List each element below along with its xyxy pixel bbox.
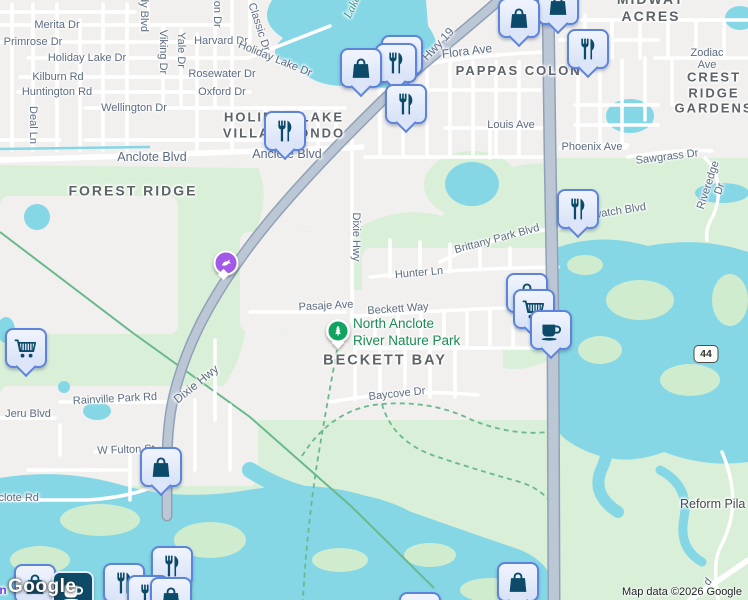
- poi-marker-restaurant[interactable]: [557, 189, 599, 229]
- poi-marker-restaurant[interactable]: [385, 84, 427, 124]
- shopping-bag-icon: [348, 55, 375, 82]
- map-base-tiles: [0, 0, 748, 600]
- shopping-bag-icon: [148, 454, 175, 481]
- attraction-pin[interactable]: [214, 251, 239, 276]
- restaurant-icon: [272, 118, 299, 145]
- poi-marker-shopping-bag[interactable]: [399, 592, 441, 600]
- shopping-cart-icon: [13, 335, 40, 362]
- shopping-bag-icon: [545, 0, 572, 19]
- map-attribution: Map data ©2026 Google: [622, 586, 742, 598]
- shopping-bag-icon: [505, 569, 532, 596]
- poi-marker-shopping-bag[interactable]: [150, 577, 192, 600]
- poi-marker-shopping-cart[interactable]: [5, 328, 47, 368]
- restaurant-icon: [383, 50, 410, 77]
- pine-tree-icon: [331, 324, 346, 339]
- restaurant-icon: [393, 91, 420, 118]
- poi-marker-shopping-bag[interactable]: [537, 0, 579, 25]
- poi-marker-shopping-bag[interactable]: [498, 0, 540, 38]
- poi-marker-coffee-cup[interactable]: [530, 310, 572, 350]
- shopping-bag-icon: [506, 5, 533, 32]
- coffee-cup-icon: [538, 317, 565, 344]
- poi-marker-restaurant[interactable]: [567, 29, 609, 69]
- shopping-bag-icon: [158, 584, 185, 600]
- dolphin-icon: [219, 256, 234, 271]
- poi-marker-restaurant[interactable]: [264, 111, 306, 151]
- map-canvas[interactable]: Google Map data ©2026 Google Merita DrPr…: [0, 0, 748, 600]
- restaurant-icon: [565, 196, 592, 223]
- poi-marker-shopping-bag[interactable]: [340, 48, 382, 88]
- route-shield: 44: [694, 345, 719, 363]
- poi-marker-shopping-bag[interactable]: [140, 447, 182, 487]
- park-pin[interactable]: [326, 319, 350, 343]
- poi-marker-shopping-bag[interactable]: [497, 562, 539, 600]
- restaurant-icon: [575, 36, 602, 63]
- google-logo[interactable]: Google: [8, 576, 76, 598]
